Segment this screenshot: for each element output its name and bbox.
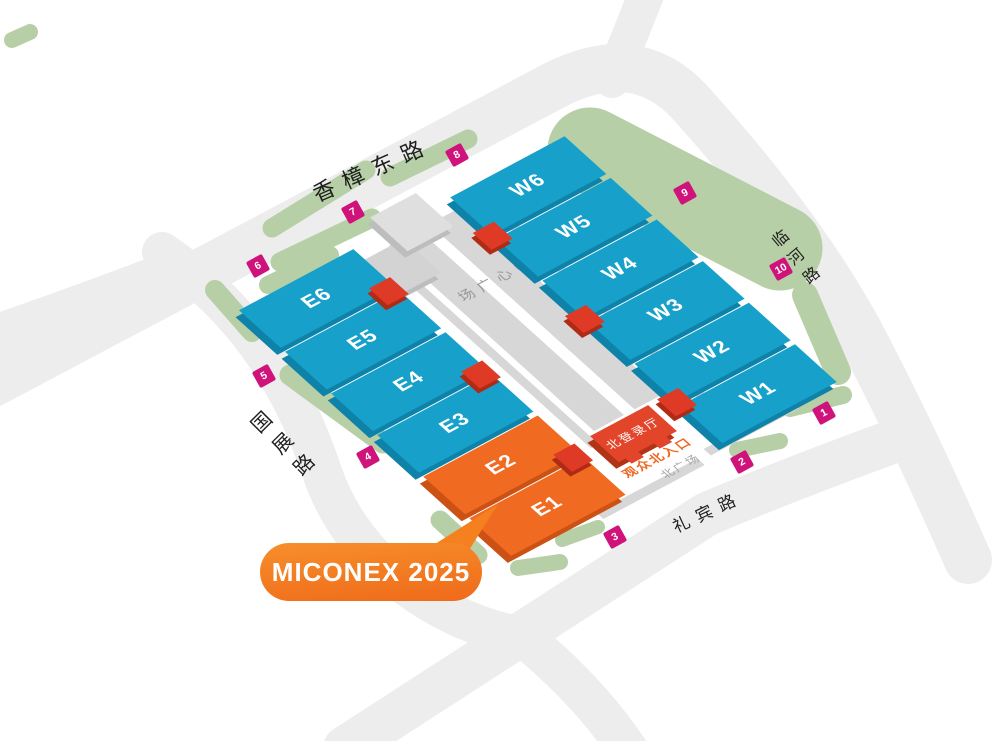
miconex-callout: MICONEX 2025 xyxy=(260,543,482,601)
callout-tail xyxy=(0,0,1000,741)
venue-map: 中心广场 E6 E5 E4 E3 E2 E1 W6 W5 W4 W3 W2 W1… xyxy=(0,0,1000,741)
miconex-callout-label: MICONEX 2025 xyxy=(260,543,482,601)
